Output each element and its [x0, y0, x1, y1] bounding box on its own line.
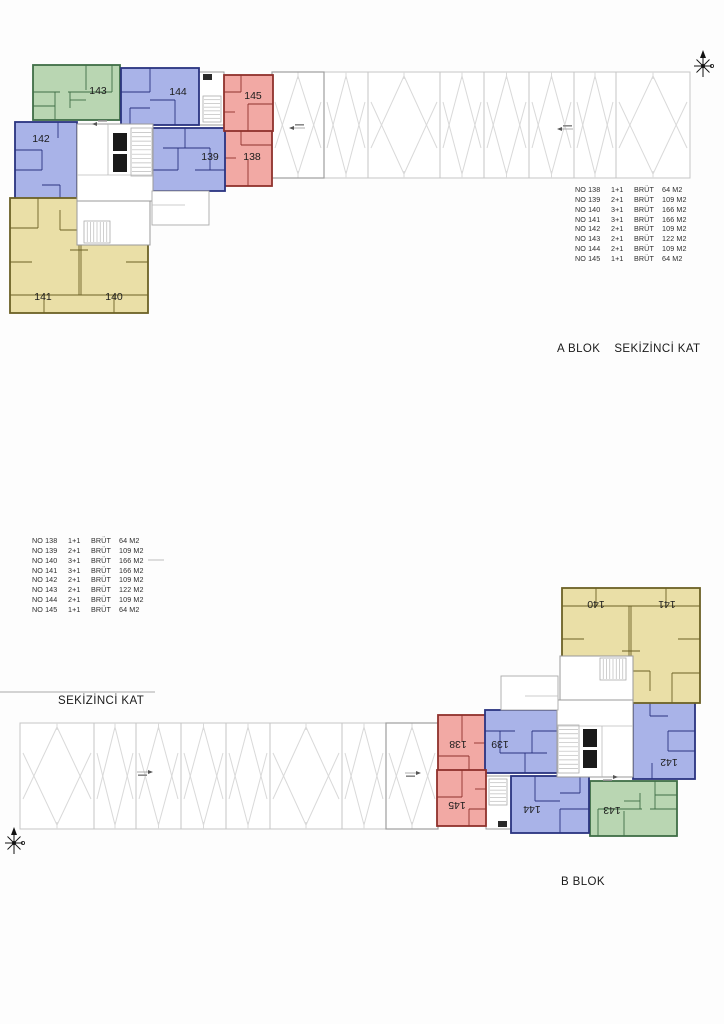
legend-cell-no: NO 143 [575, 234, 609, 244]
legend-cell-brut: BRÜT [91, 605, 119, 615]
unit-139: 139 [485, 710, 560, 773]
legend-cell-area: 109 M2 [662, 244, 710, 254]
legend-cell-no: NO 140 [32, 556, 66, 566]
unit-outline [590, 781, 677, 836]
legend-cell-area: 109 M2 [119, 575, 167, 585]
legend-cell-type: 2+1 [66, 546, 91, 556]
floor-plan-sheet: 1381391421431441451411401381391421431441… [0, 0, 724, 1024]
unit-145: 145 [224, 75, 273, 131]
compass-hub [701, 64, 705, 68]
unit-outline [511, 776, 589, 833]
unit-number-label: 143 [89, 85, 107, 97]
legend-cell-no: NO 139 [32, 546, 66, 556]
block-b-label: B BLOK [561, 876, 605, 888]
stair-rect [558, 725, 579, 773]
legend-cell-brut: BRÜT [91, 595, 119, 605]
unit-number-label: 138 [243, 151, 261, 163]
garage-strip [272, 72, 690, 178]
unit-number-label: 145 [448, 799, 466, 811]
legend-cell-no: NO 143 [32, 585, 66, 595]
unit-139: 139 [150, 128, 225, 191]
compass-north-arrow [11, 827, 17, 835]
unit-144: 144 [511, 776, 589, 833]
unit-143: 143 [590, 781, 677, 836]
legend-cell-area: 166 M2 [662, 215, 710, 225]
mark-text-blur [98, 120, 107, 122]
stair-shaft [486, 776, 511, 829]
unit-number-label: 143 [603, 804, 621, 816]
legend-cell-brut: BRÜT [91, 575, 119, 585]
legend-cell-no: NO 142 [575, 224, 609, 234]
legend-cell-no: NO 139 [575, 195, 609, 205]
service-room [501, 676, 558, 710]
legend-cell-brut: BRÜT [634, 224, 662, 234]
legend-cell-area: 166 M2 [119, 566, 167, 576]
unit-outline [121, 68, 199, 125]
unit-outline [437, 770, 486, 826]
legend-cell-type: 1+1 [66, 605, 91, 615]
legend-cell-no: NO 138 [575, 185, 609, 195]
unit-number-label: 144 [523, 803, 541, 815]
legend-table-a: NO 1381+1BRÜT64 M2NO 1392+1BRÜT109 M2NO … [575, 185, 710, 264]
stair-hatch [131, 128, 152, 176]
unit-142: 142 [15, 122, 77, 201]
north-star-icon [5, 827, 25, 854]
legend-cell-brut: BRÜT [634, 244, 662, 254]
compass-north-arrow [700, 50, 706, 58]
legend-cell-area: 166 M2 [662, 205, 710, 215]
legend-cell-type: 3+1 [609, 215, 634, 225]
north-star-icon [694, 50, 714, 77]
legend-cell-no: NO 138 [32, 536, 66, 546]
legend-cell-no: NO 142 [32, 575, 66, 585]
mark-text-blur [563, 125, 572, 127]
legend-cell-brut: BRÜT [634, 185, 662, 195]
unit-number-label: 144 [169, 86, 187, 98]
legend-cell-type: 2+1 [609, 195, 634, 205]
floor-a-label: SEKİZİNCİ KAT [614, 343, 700, 355]
core-stair-elevator [77, 124, 153, 201]
legend-cell-no: NO 144 [575, 244, 609, 254]
unit-outline [224, 75, 273, 131]
legend-cell-brut: BRÜT [634, 215, 662, 225]
floor-b-label: SEKİZİNCİ KAT [58, 695, 144, 707]
legend-cell-brut: BRÜT [91, 556, 119, 566]
legend-cell-no: NO 145 [32, 605, 66, 615]
garage-strip [20, 723, 438, 829]
legend-cell-area: 64 M2 [662, 185, 710, 195]
mark-text-blur [138, 774, 147, 776]
legend-cell-type: 1+1 [609, 254, 634, 264]
legend-cell-area: 109 M2 [119, 546, 167, 556]
legend-cell-area: 109 M2 [662, 195, 710, 205]
legend-cell-type: 1+1 [609, 185, 634, 195]
legend-cell-type: 3+1 [609, 205, 634, 215]
stair-shaft [199, 72, 224, 125]
unit-number-label: 142 [660, 756, 678, 768]
caption-a: A BLOKSEKİZİNCİ KAT [557, 343, 700, 355]
unit-outline [33, 65, 120, 120]
legend-cell-brut: BRÜT [634, 195, 662, 205]
mark-text-blur [406, 775, 415, 777]
core-stair-elevator [557, 700, 633, 777]
legend-cell-no: NO 140 [575, 205, 609, 215]
unit-number-label: 139 [201, 151, 219, 163]
legend-cell-brut: BRÜT [91, 546, 119, 556]
elevator-shaft [583, 750, 597, 768]
legend-cell-brut: BRÜT [91, 536, 119, 546]
stair-hatch [600, 658, 626, 680]
stair-rect [131, 128, 152, 176]
legend-cell-area: 64 M2 [119, 536, 167, 546]
unit-144: 144 [121, 68, 199, 125]
legend-cell-area: 109 M2 [662, 224, 710, 234]
elevator-shaft [113, 133, 127, 151]
stair-hatch [558, 725, 579, 773]
legend-cell-area: 64 M2 [662, 254, 710, 264]
block-a-label: A BLOK [557, 343, 600, 355]
unit-number-label: 142 [32, 133, 50, 145]
legend-cell-brut: BRÜT [634, 254, 662, 264]
legend-cell-no: NO 141 [32, 566, 66, 576]
legend-cell-type: 3+1 [66, 556, 91, 566]
legend-cell-type: 2+1 [66, 585, 91, 595]
legend-cell-area: 122 M2 [119, 585, 167, 595]
b-block-plan: 138139142143144145141140 [20, 588, 700, 836]
service-room [152, 191, 209, 225]
legend-cell-type: 2+1 [66, 595, 91, 605]
stair-hatch [203, 96, 221, 122]
legend-cell-type: 2+1 [609, 234, 634, 244]
legend-table-b: NO 1381+1BRÜT64 M2NO 1392+1BRÜT109 M2NO … [32, 536, 167, 615]
legend-cell-type: 2+1 [609, 224, 634, 234]
legend-cell-area: 122 M2 [662, 234, 710, 244]
legend-cell-area: 166 M2 [119, 556, 167, 566]
unit-142: 142 [633, 700, 695, 779]
mark-text-blur [603, 779, 612, 781]
unit-number-label: 145 [244, 90, 262, 102]
unit-number-label: 139 [491, 738, 509, 750]
shaft-duct [498, 821, 507, 827]
legend-cell-type: 1+1 [66, 536, 91, 546]
unit-number-label: 141 [34, 291, 52, 303]
elevator-shaft [113, 154, 127, 172]
legend-cell-no: NO 144 [32, 595, 66, 605]
legend-cell-area: 64 M2 [119, 605, 167, 615]
stair-hatch [84, 221, 110, 243]
stair-hatch [489, 779, 507, 805]
elevator-shaft [583, 729, 597, 747]
legend-cell-type: 3+1 [66, 566, 91, 576]
unit-number-label: 140 [105, 291, 123, 303]
legend-cell-brut: BRÜT [91, 585, 119, 595]
unit-number-label: 138 [449, 738, 467, 750]
legend-cell-brut: BRÜT [634, 205, 662, 215]
unit-138: 138 [438, 715, 486, 773]
unit-138: 138 [224, 128, 272, 186]
shaft-duct [203, 74, 212, 80]
legend-cell-brut: BRÜT [634, 234, 662, 244]
legend-cell-brut: BRÜT [91, 566, 119, 576]
legend-cell-type: 2+1 [609, 244, 634, 254]
legend-cell-area: 109 M2 [119, 595, 167, 605]
unit-143: 143 [33, 65, 120, 120]
unit-number-label: 140 [587, 598, 605, 610]
unit-145: 145 [437, 770, 486, 826]
legend-cell-type: 2+1 [66, 575, 91, 585]
legend-cell-no: NO 141 [575, 215, 609, 225]
legend-cell-no: NO 145 [575, 254, 609, 264]
site-plan-svg: 1381391421431441451411401381391421431441… [0, 0, 724, 1024]
mark-text-blur [295, 124, 304, 126]
unit-number-label: 141 [658, 598, 676, 610]
compass-hub [12, 841, 16, 845]
